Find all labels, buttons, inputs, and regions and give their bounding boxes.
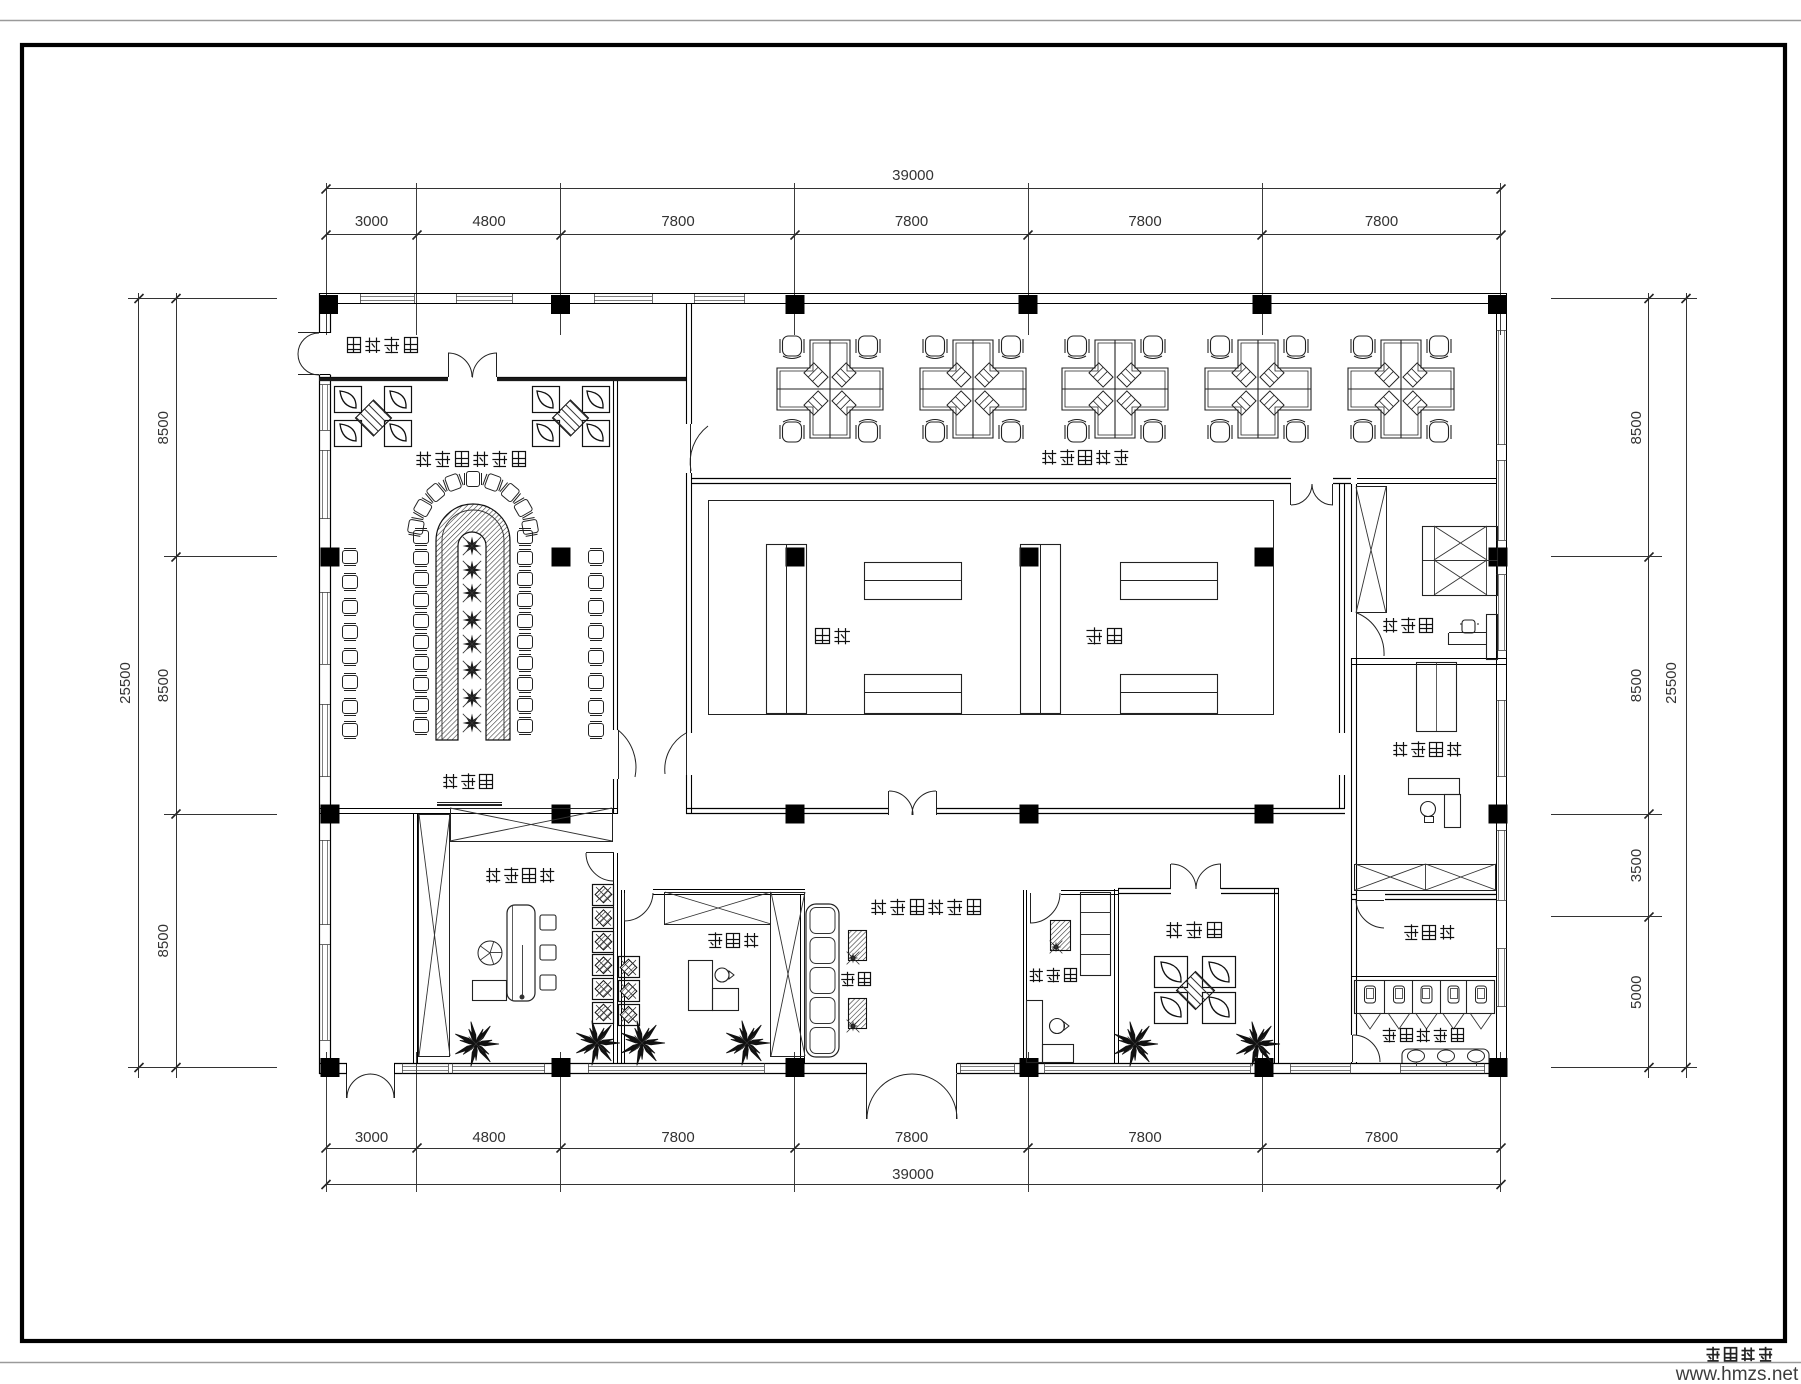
svg-text:7800: 7800 — [895, 213, 928, 230]
svg-text:7800: 7800 — [895, 1129, 928, 1146]
svg-text:8500: 8500 — [155, 924, 172, 957]
svg-text:5000: 5000 — [1628, 976, 1645, 1009]
svg-text:4800: 4800 — [472, 1129, 505, 1146]
svg-text:7800: 7800 — [1365, 213, 1398, 230]
svg-text:25500: 25500 — [1663, 662, 1680, 704]
svg-text:7800: 7800 — [1128, 213, 1161, 230]
svg-text:3000: 3000 — [355, 213, 388, 230]
svg-text:7800: 7800 — [1128, 1129, 1161, 1146]
svg-text:25500: 25500 — [117, 662, 134, 704]
svg-text:7800: 7800 — [1365, 1129, 1398, 1146]
svg-text:8500: 8500 — [155, 411, 172, 444]
svg-text:www.hmzs.net: www.hmzs.net — [1675, 1364, 1799, 1384]
svg-text:7800: 7800 — [661, 1129, 694, 1146]
svg-text:39000: 39000 — [892, 167, 934, 184]
svg-text:8500: 8500 — [1628, 669, 1645, 702]
svg-text:8500: 8500 — [1628, 411, 1645, 444]
svg-text:3000: 3000 — [355, 1129, 388, 1146]
svg-text:7800: 7800 — [661, 213, 694, 230]
svg-text:3500: 3500 — [1628, 849, 1645, 882]
svg-text:39000: 39000 — [892, 1166, 934, 1183]
svg-text:8500: 8500 — [155, 669, 172, 702]
svg-text:4800: 4800 — [472, 213, 505, 230]
